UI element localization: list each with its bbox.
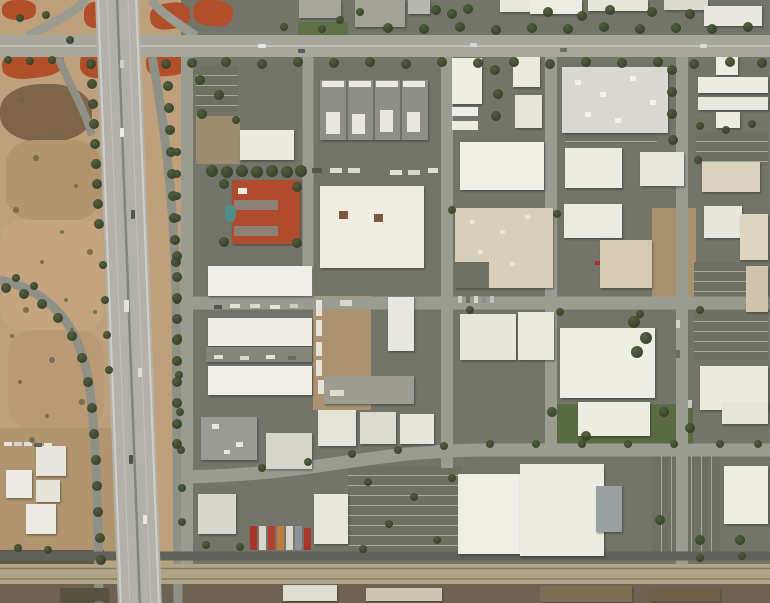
tree [221,57,231,67]
tree [631,346,643,358]
tree [95,533,105,543]
detail-mark [330,168,342,173]
detail-mark [470,220,475,224]
building [702,162,760,192]
detail-mark [458,296,462,303]
tree [178,518,186,526]
detail-mark [330,390,344,396]
detail-mark [4,442,12,446]
building [314,494,348,544]
detail-mark [234,200,278,210]
tree [26,57,34,65]
tree [671,23,681,33]
detail-mark [615,118,621,123]
tree [173,148,181,156]
tree [696,122,704,130]
tree [578,440,586,448]
building [698,97,768,110]
building [746,266,768,312]
detail-mark [510,262,515,266]
tree [176,408,184,416]
tree [12,274,20,282]
building [518,312,554,360]
detail-mark [525,215,530,219]
vehicle [131,210,135,219]
shrub [87,249,93,255]
vehicle [120,128,124,137]
ramp-nw [28,0,86,36]
tree [383,23,393,33]
tree [163,81,173,91]
building [564,204,622,238]
tree [42,11,50,19]
detail-mark [346,80,348,140]
detail-mark [373,80,375,140]
tree [93,199,103,209]
tree [670,440,678,448]
tree [757,58,767,68]
tree [48,56,56,64]
tree [77,353,87,363]
tree [236,543,244,551]
detail-mark [482,296,486,303]
tree [628,316,640,328]
tree [491,111,501,121]
tree [490,65,500,75]
detail-mark [34,443,42,447]
building [320,186,424,268]
tree [103,331,111,339]
tree [280,23,288,31]
detail-mark [240,356,249,360]
detail-mark [259,526,266,550]
vehicle [700,44,707,48]
shrub [64,298,68,302]
vehicle [120,60,124,68]
building [208,366,312,395]
detail-mark [474,296,478,303]
detail-mark [478,250,483,254]
tree [410,493,418,501]
detail-mark [585,112,591,117]
tree [532,440,540,448]
tree [447,9,457,19]
tree [165,125,175,135]
building [724,466,768,524]
detail-mark [340,300,352,306]
tree [172,398,182,408]
tree [172,419,182,429]
detail-mark [452,121,478,130]
vehicle [258,44,266,48]
tree [236,165,248,177]
detail-mark [455,262,489,288]
tree [543,7,553,17]
detail-mark [380,110,393,132]
tree [748,120,756,128]
detail-mark [466,296,470,303]
tree [486,440,494,448]
tree [431,5,441,15]
building [596,486,622,532]
building [600,240,652,288]
tree [219,179,229,189]
shrub [19,97,25,103]
tree [206,165,218,177]
vehicle [143,515,147,524]
tree [172,335,182,345]
vehicle [138,368,142,377]
detail-mark [452,107,478,116]
detail-mark [326,112,340,134]
tree [365,57,375,67]
tree [455,22,465,32]
tree [91,159,101,169]
tree [735,535,745,545]
tree [172,356,182,366]
building [664,0,708,10]
detail-mark [407,112,420,132]
tree [90,139,100,149]
shrub [60,230,64,234]
tree [37,299,47,309]
tree [581,57,591,67]
detail-mark [250,526,257,550]
tree [197,109,207,119]
tree [173,170,181,178]
shrub [40,260,44,264]
tree [258,464,266,472]
tree [44,546,52,554]
tree [493,89,503,99]
tree [667,87,677,97]
detail-mark [390,170,402,175]
tree [695,535,705,545]
detail-mark [600,92,606,97]
detail-mark [288,356,296,360]
tree [87,79,97,89]
building [408,0,430,14]
detail-mark [500,230,505,234]
tree [433,536,441,544]
tree [172,439,182,449]
vehicle [470,43,477,47]
building [460,142,544,190]
building [208,318,312,346]
building [299,0,341,18]
tree [556,308,564,316]
tree [689,59,699,69]
tree [251,166,263,178]
building [36,480,60,502]
tree [659,407,669,417]
tree [448,474,456,482]
detail-mark [490,296,494,303]
tree [67,331,77,341]
detail-mark [304,528,311,550]
tree [53,313,63,323]
building [283,585,337,601]
tree [722,126,730,134]
detail-mark [595,261,600,265]
building [704,6,762,26]
shrub [79,399,85,405]
building [698,77,768,93]
detail-mark [290,304,298,308]
tree [509,57,519,67]
tree [577,11,587,21]
detail-mark [316,320,322,336]
detail-mark [408,170,420,175]
tree [356,8,364,16]
detail-mark [250,304,260,308]
shrub [45,414,49,418]
tree [292,238,302,248]
tree [96,555,106,565]
tree [440,442,448,450]
tree [257,59,267,69]
shrub [23,307,29,313]
satellite-map-canvas[interactable] [0,0,770,603]
detail-mark [339,211,348,219]
shrub [54,132,58,136]
tree [716,440,724,448]
tree [87,403,97,413]
building [400,414,434,444]
tree [437,57,447,67]
building [360,412,396,444]
tree [668,135,678,145]
tree [364,478,372,486]
detail-mark [575,80,581,85]
tree [743,22,753,32]
detail-mark [403,81,425,87]
detail-mark [236,442,243,447]
tree [685,9,695,19]
building [520,464,604,556]
shrub [29,437,35,443]
tree [266,165,278,177]
tree [164,103,174,113]
tree [91,455,101,465]
onramp [58,57,92,135]
tree [178,484,186,492]
tree [685,423,695,433]
shrub [70,328,74,332]
detail-mark [268,526,275,550]
tree [655,515,665,525]
tree [214,90,224,100]
tree [172,293,182,303]
tree [19,289,29,299]
building [704,206,742,238]
detail-mark [352,114,365,134]
tree [617,58,627,68]
shrub [74,184,78,188]
tree [30,282,38,290]
tree [348,450,356,458]
tree [281,166,293,178]
detail-mark [312,168,322,173]
tree [172,272,182,282]
tree [738,552,746,560]
building [540,586,632,602]
tree [647,7,657,17]
tree [172,314,182,324]
building [722,402,768,424]
tree [101,296,109,304]
detail-mark [270,305,280,309]
tree [304,458,312,466]
building [366,588,442,601]
tree [89,119,99,129]
detail-mark [214,355,223,359]
tree [89,429,99,439]
tree [419,24,429,34]
detail-mark [316,342,322,356]
tree [463,4,473,14]
vehicle [560,48,567,52]
tree [94,219,104,229]
tree [359,545,367,553]
vehicle [129,455,133,464]
detail-mark [650,100,656,105]
building [36,446,66,476]
vehicle [124,300,129,312]
shrub [33,155,39,161]
tree [170,235,180,245]
tree [92,179,102,189]
tree [635,24,645,34]
tree [172,251,182,261]
tree [563,24,573,34]
tree [473,58,483,68]
tree [401,59,411,69]
detail-mark [349,81,371,87]
tree [599,22,609,32]
detail-mark [277,526,284,550]
tree [219,237,229,247]
building [240,130,294,160]
tree [653,57,663,67]
detail-mark [286,526,293,550]
tree [4,56,12,64]
tree [161,59,171,69]
tree [318,25,326,33]
detail-mark [225,205,236,222]
building [460,314,516,360]
building [530,0,582,14]
building [6,470,32,498]
detail-mark [316,360,322,376]
detail-mark [234,226,278,236]
tree [694,156,702,164]
tree [187,58,197,68]
tree [696,306,704,314]
building [198,494,236,534]
tree [221,166,233,178]
detail-mark [295,526,302,550]
tree [394,446,402,454]
detail-mark [322,81,344,87]
detail-mark [316,300,322,316]
tree [232,116,240,124]
shrub [49,357,55,363]
detail-mark [348,168,360,173]
detail-mark [428,168,438,173]
shrub [13,207,19,213]
detail-mark [318,380,324,394]
tree [1,283,11,293]
tree [173,214,181,222]
tree [527,23,537,33]
tree [83,377,93,387]
tree [202,541,210,549]
detail-mark [212,424,219,429]
tree [66,36,74,44]
tree [88,99,98,109]
detail-mark [14,442,22,446]
building [640,152,684,186]
tree [754,440,762,448]
tree [293,57,303,67]
tree [624,440,632,448]
tree [173,192,181,200]
building [318,410,356,446]
detail-mark [676,350,680,358]
detail-mark [266,355,275,359]
building [740,214,768,260]
tree [448,206,456,214]
tree [605,5,615,15]
shrub [93,310,97,314]
detail-mark [214,305,222,309]
building [650,588,720,602]
building [515,95,542,128]
tree [707,24,717,34]
detail-mark [238,188,247,194]
tree [667,65,677,75]
tree [640,332,652,344]
detail-mark [400,80,402,140]
building [565,148,622,188]
detail-mark [376,81,398,87]
tree [16,14,24,22]
tree [92,481,102,491]
building [588,0,648,11]
detail-mark [630,76,636,81]
building [26,504,56,534]
tree [99,261,107,269]
tree [172,377,182,387]
tree [295,165,307,177]
tree [581,431,591,441]
vehicle [298,49,305,53]
tree [336,16,344,24]
tree [725,57,735,67]
tree [292,182,302,192]
tree [466,306,474,314]
shrub [18,380,22,384]
detail-mark [44,443,52,447]
tree [86,59,96,69]
tree [105,366,113,374]
building [388,297,414,351]
tree [195,75,205,85]
ramp-ne [152,0,196,36]
tree [667,109,677,119]
detail-mark [374,214,383,222]
